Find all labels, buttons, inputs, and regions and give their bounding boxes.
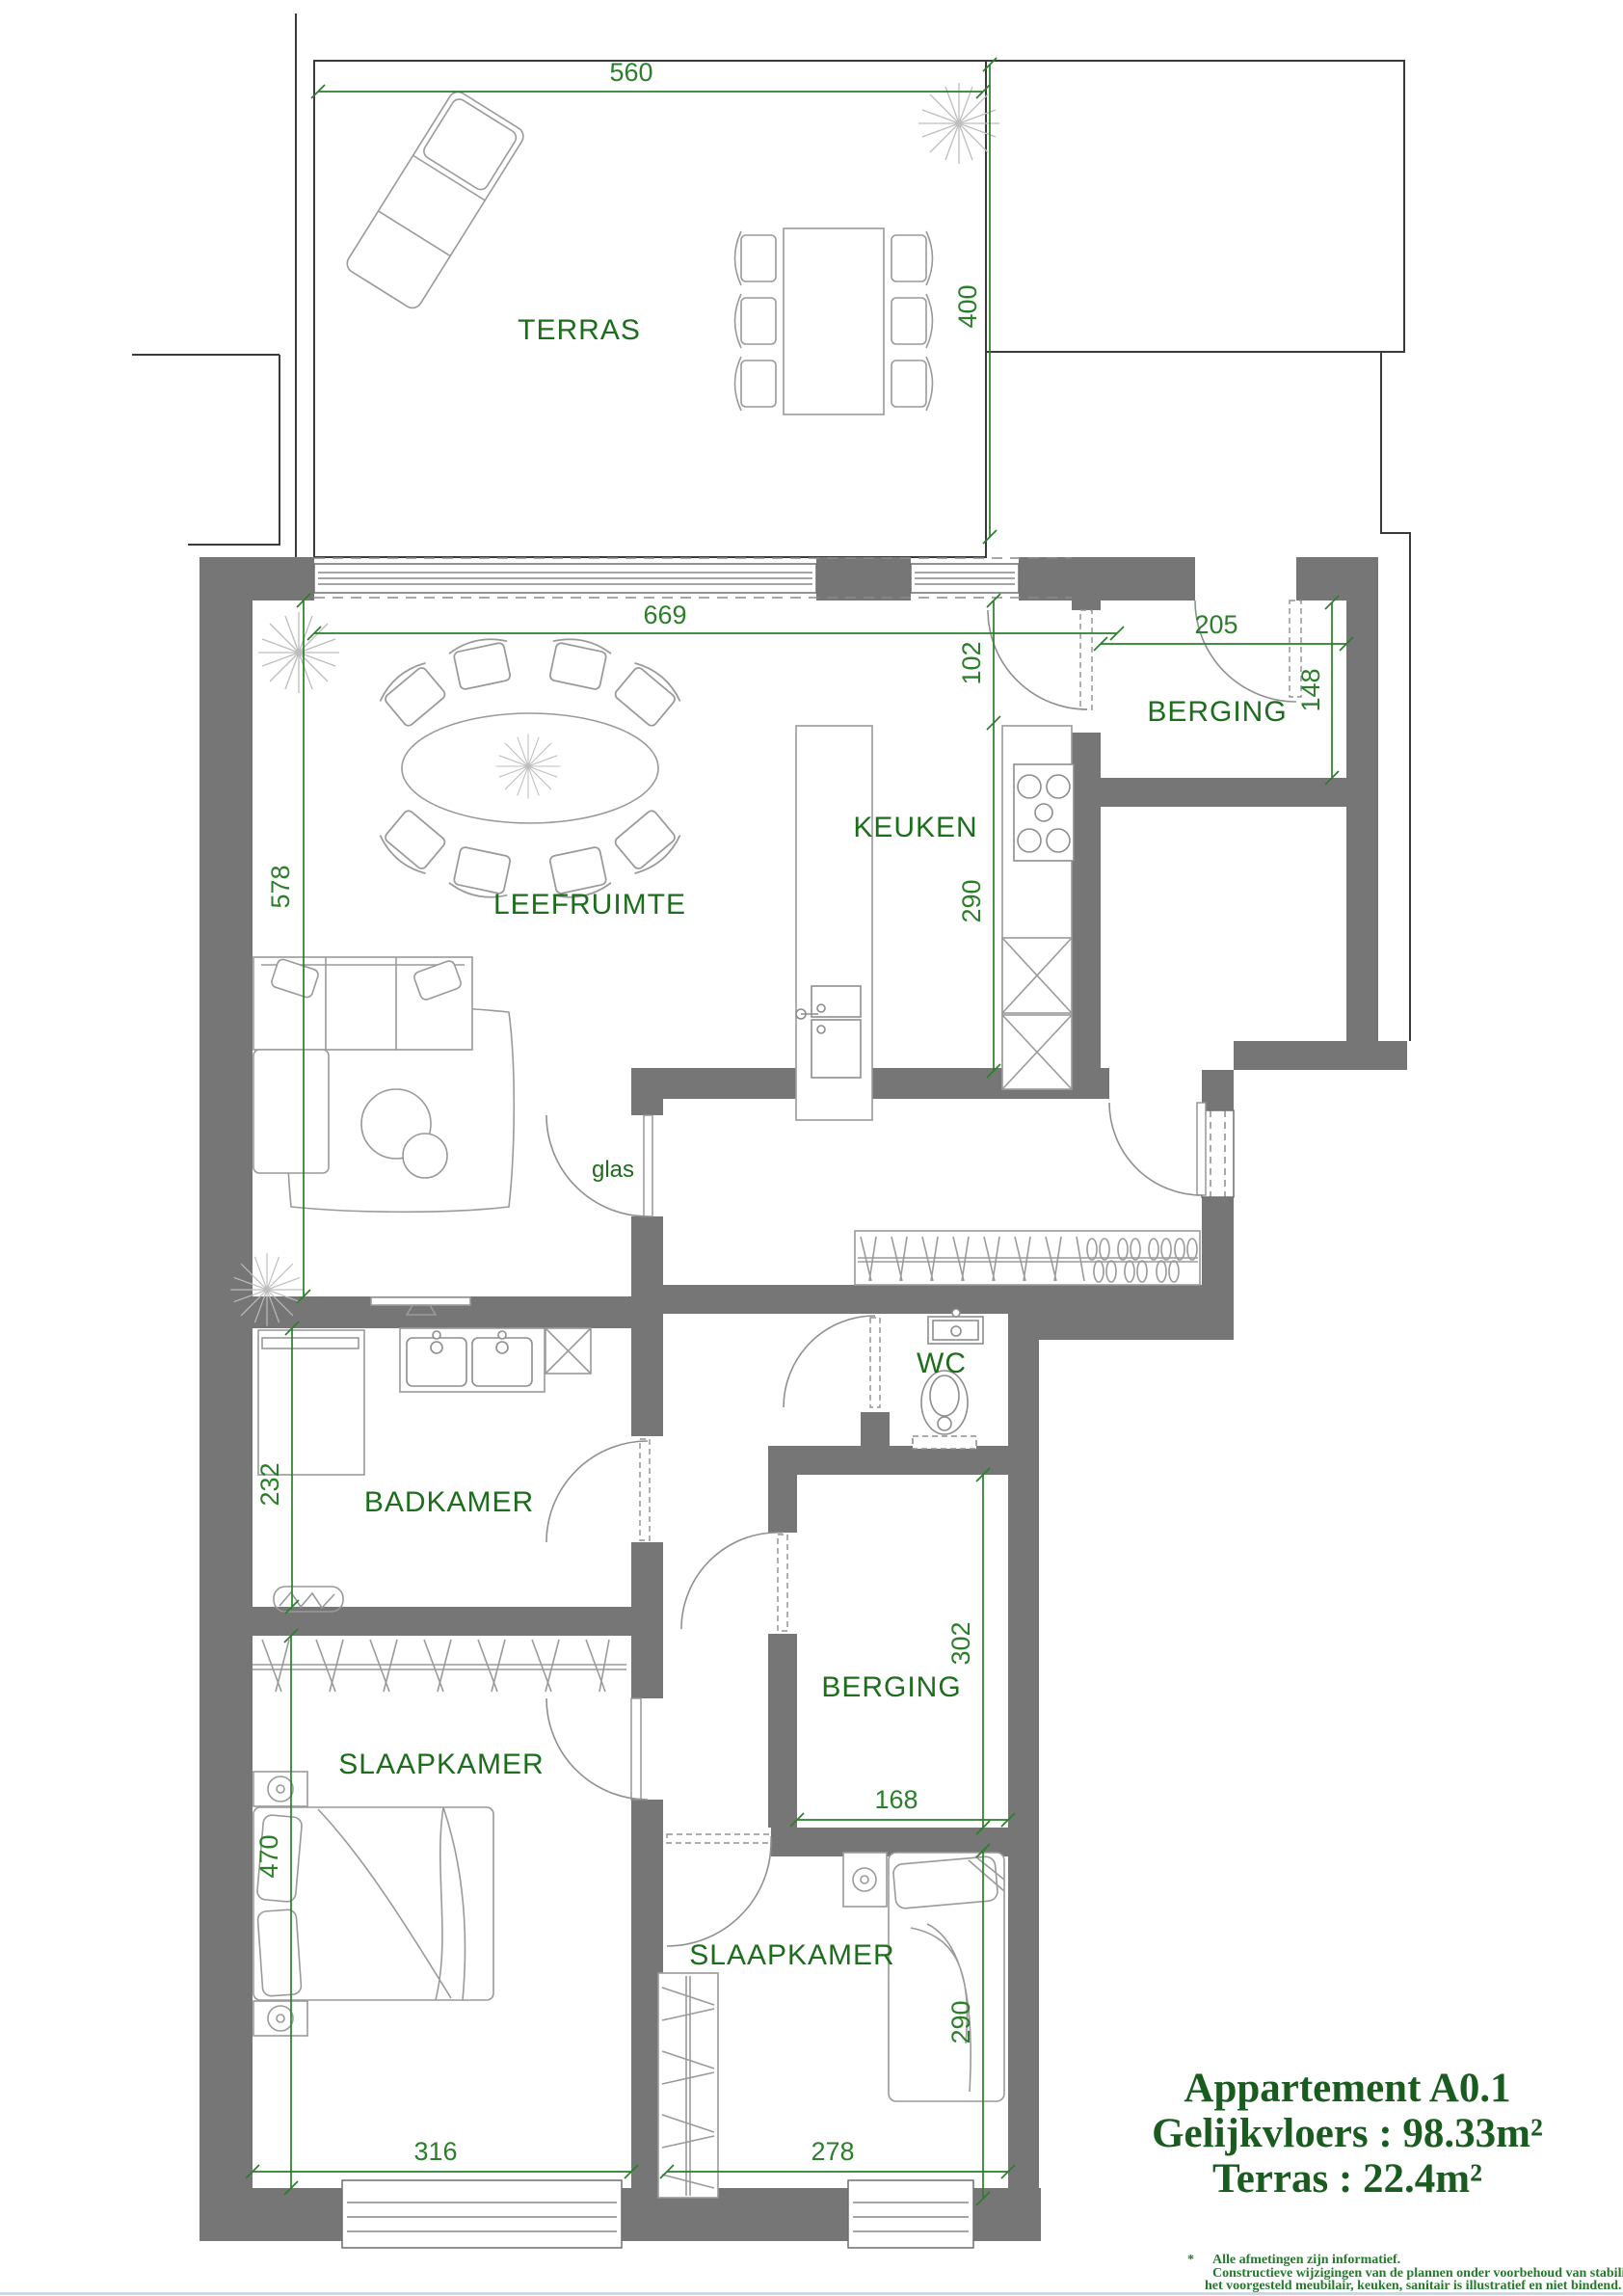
lounge-chair bbox=[344, 89, 527, 312]
light-point-icon bbox=[495, 734, 560, 798]
wardrobe bbox=[658, 1973, 718, 2198]
dim-leefruimte-depth: 578 bbox=[266, 594, 310, 1303]
title-line3: Terras : 22.4m² bbox=[1212, 2156, 1482, 2202]
dim-berging-top-width: 205 bbox=[1094, 610, 1353, 651]
dim-leefruimte-width: 669 bbox=[307, 601, 1124, 640]
dim-berging-top-depth: 148 bbox=[1296, 596, 1339, 785]
terrace-furniture bbox=[344, 83, 999, 414]
bedroom2-door bbox=[667, 1834, 771, 1946]
nightstand bbox=[843, 1853, 887, 1907]
room-label-slaapkamer1: SLAAPKAMER bbox=[338, 1749, 544, 1780]
toilet bbox=[913, 1371, 976, 1449]
vanity bbox=[400, 1328, 545, 1392]
title-block: Appartement A0.1 Gelijkvloers : 98.33m² … bbox=[1152, 2066, 1543, 2202]
dim-label: 302 bbox=[946, 1621, 975, 1665]
berging-door bbox=[681, 1533, 787, 1631]
side-table bbox=[403, 1134, 447, 1178]
room-label-slaapkamer2: SLAAPKAMER bbox=[689, 1939, 894, 1971]
disclaimer: * Alle afmetingen zijn informatief. Cons… bbox=[1187, 2253, 1623, 2293]
terrace-table bbox=[784, 228, 884, 414]
kitchen-corridor-door bbox=[988, 610, 1092, 709]
bathroom-fixtures bbox=[258, 1328, 591, 1612]
light-point-icon bbox=[258, 612, 339, 693]
dim-label: 400 bbox=[953, 284, 982, 328]
washing-machine bbox=[545, 1328, 591, 1374]
cooktop bbox=[1014, 764, 1074, 861]
kitchen-fixtures bbox=[796, 726, 1074, 1120]
disclaimer-line3: het voorgesteld meubilair, keuken, sanit… bbox=[1205, 2279, 1621, 2293]
dim-terras-depth: 400 bbox=[953, 58, 997, 544]
wardrobe-rail bbox=[253, 1640, 626, 1692]
terrace-door-window bbox=[911, 564, 1019, 593]
room-label-badkamer: BADKAMER bbox=[364, 1486, 534, 1518]
wc-door bbox=[784, 1316, 880, 1407]
room-label-wc: WC bbox=[917, 1348, 967, 1379]
dim-label: 278 bbox=[811, 2137, 854, 2166]
dim-label: 102 bbox=[957, 641, 986, 684]
bedroom1-furniture bbox=[253, 1640, 626, 2036]
bedroom1-door bbox=[546, 1698, 648, 1800]
glass-door-label: glas bbox=[592, 1157, 634, 1183]
single-bed bbox=[889, 1853, 1004, 2101]
bedroom2-window bbox=[848, 2180, 973, 2248]
dim-label: 148 bbox=[1296, 668, 1325, 711]
shower bbox=[258, 1330, 364, 1475]
entry-sidelight bbox=[1202, 1110, 1234, 1197]
room-label-leefruimte: LEEFRUIMTE bbox=[493, 889, 686, 921]
sliding-window-terrace bbox=[314, 564, 816, 593]
dim-label: 290 bbox=[957, 879, 986, 922]
entry-door bbox=[1109, 1103, 1206, 1195]
bedroom1-window bbox=[342, 2180, 622, 2248]
dim-slaapkamer1-width: 316 bbox=[246, 2137, 638, 2178]
room-label-berging-top: BERGING bbox=[1147, 696, 1287, 728]
living-furniture bbox=[230, 612, 684, 1326]
dim-label: 205 bbox=[1194, 610, 1237, 639]
dim-label: 290 bbox=[946, 2000, 975, 2043]
dim-label: 316 bbox=[413, 2137, 457, 2166]
floor-plan: 560 400 669 102 290 578 205 148 bbox=[0, 0, 1623, 2296]
property-outline bbox=[132, 13, 1410, 1041]
disclaimer-bullet: * bbox=[1187, 2253, 1194, 2267]
dim-berging-depth: 302 bbox=[946, 1468, 990, 1834]
sink bbox=[811, 986, 861, 1017]
light-point-icon bbox=[230, 1253, 304, 1326]
light-point-icon bbox=[918, 83, 999, 164]
hall-wardrobe bbox=[855, 1231, 1200, 1285]
dim-berging-width: 168 bbox=[790, 1785, 1015, 1827]
room-label-keuken: KEUKEN bbox=[853, 812, 977, 843]
appliance-unit bbox=[1002, 938, 1072, 1089]
nightstand bbox=[253, 1772, 307, 1806]
dim-keuken-door: 102 bbox=[957, 594, 1000, 730]
dim-label: 470 bbox=[254, 1834, 283, 1878]
title-line1: Appartement A0.1 bbox=[1184, 2066, 1510, 2111]
dim-keuken-depth: 290 bbox=[957, 723, 1000, 1078]
dim-label: 560 bbox=[609, 58, 652, 87]
terrace-outline bbox=[314, 61, 986, 557]
disclaimer-line1: Alle afmetingen zijn informatief. bbox=[1212, 2253, 1400, 2267]
nightstand bbox=[253, 2001, 307, 2036]
dim-label: 232 bbox=[255, 1462, 284, 1506]
dim-label: 578 bbox=[266, 865, 295, 908]
room-label-terras: TERRAS bbox=[518, 314, 641, 346]
footer-rule bbox=[0, 2292, 1623, 2295]
dim-label: 669 bbox=[643, 601, 686, 629]
dim-label: 168 bbox=[874, 1785, 918, 1814]
bathroom-door bbox=[546, 1439, 650, 1542]
room-label-berging: BERGING bbox=[821, 1671, 961, 1703]
dim-terras-width: 560 bbox=[311, 58, 990, 98]
double-bed bbox=[253, 1807, 493, 2000]
title-line2: Gelijkvloers : 98.33m² bbox=[1152, 2111, 1543, 2156]
